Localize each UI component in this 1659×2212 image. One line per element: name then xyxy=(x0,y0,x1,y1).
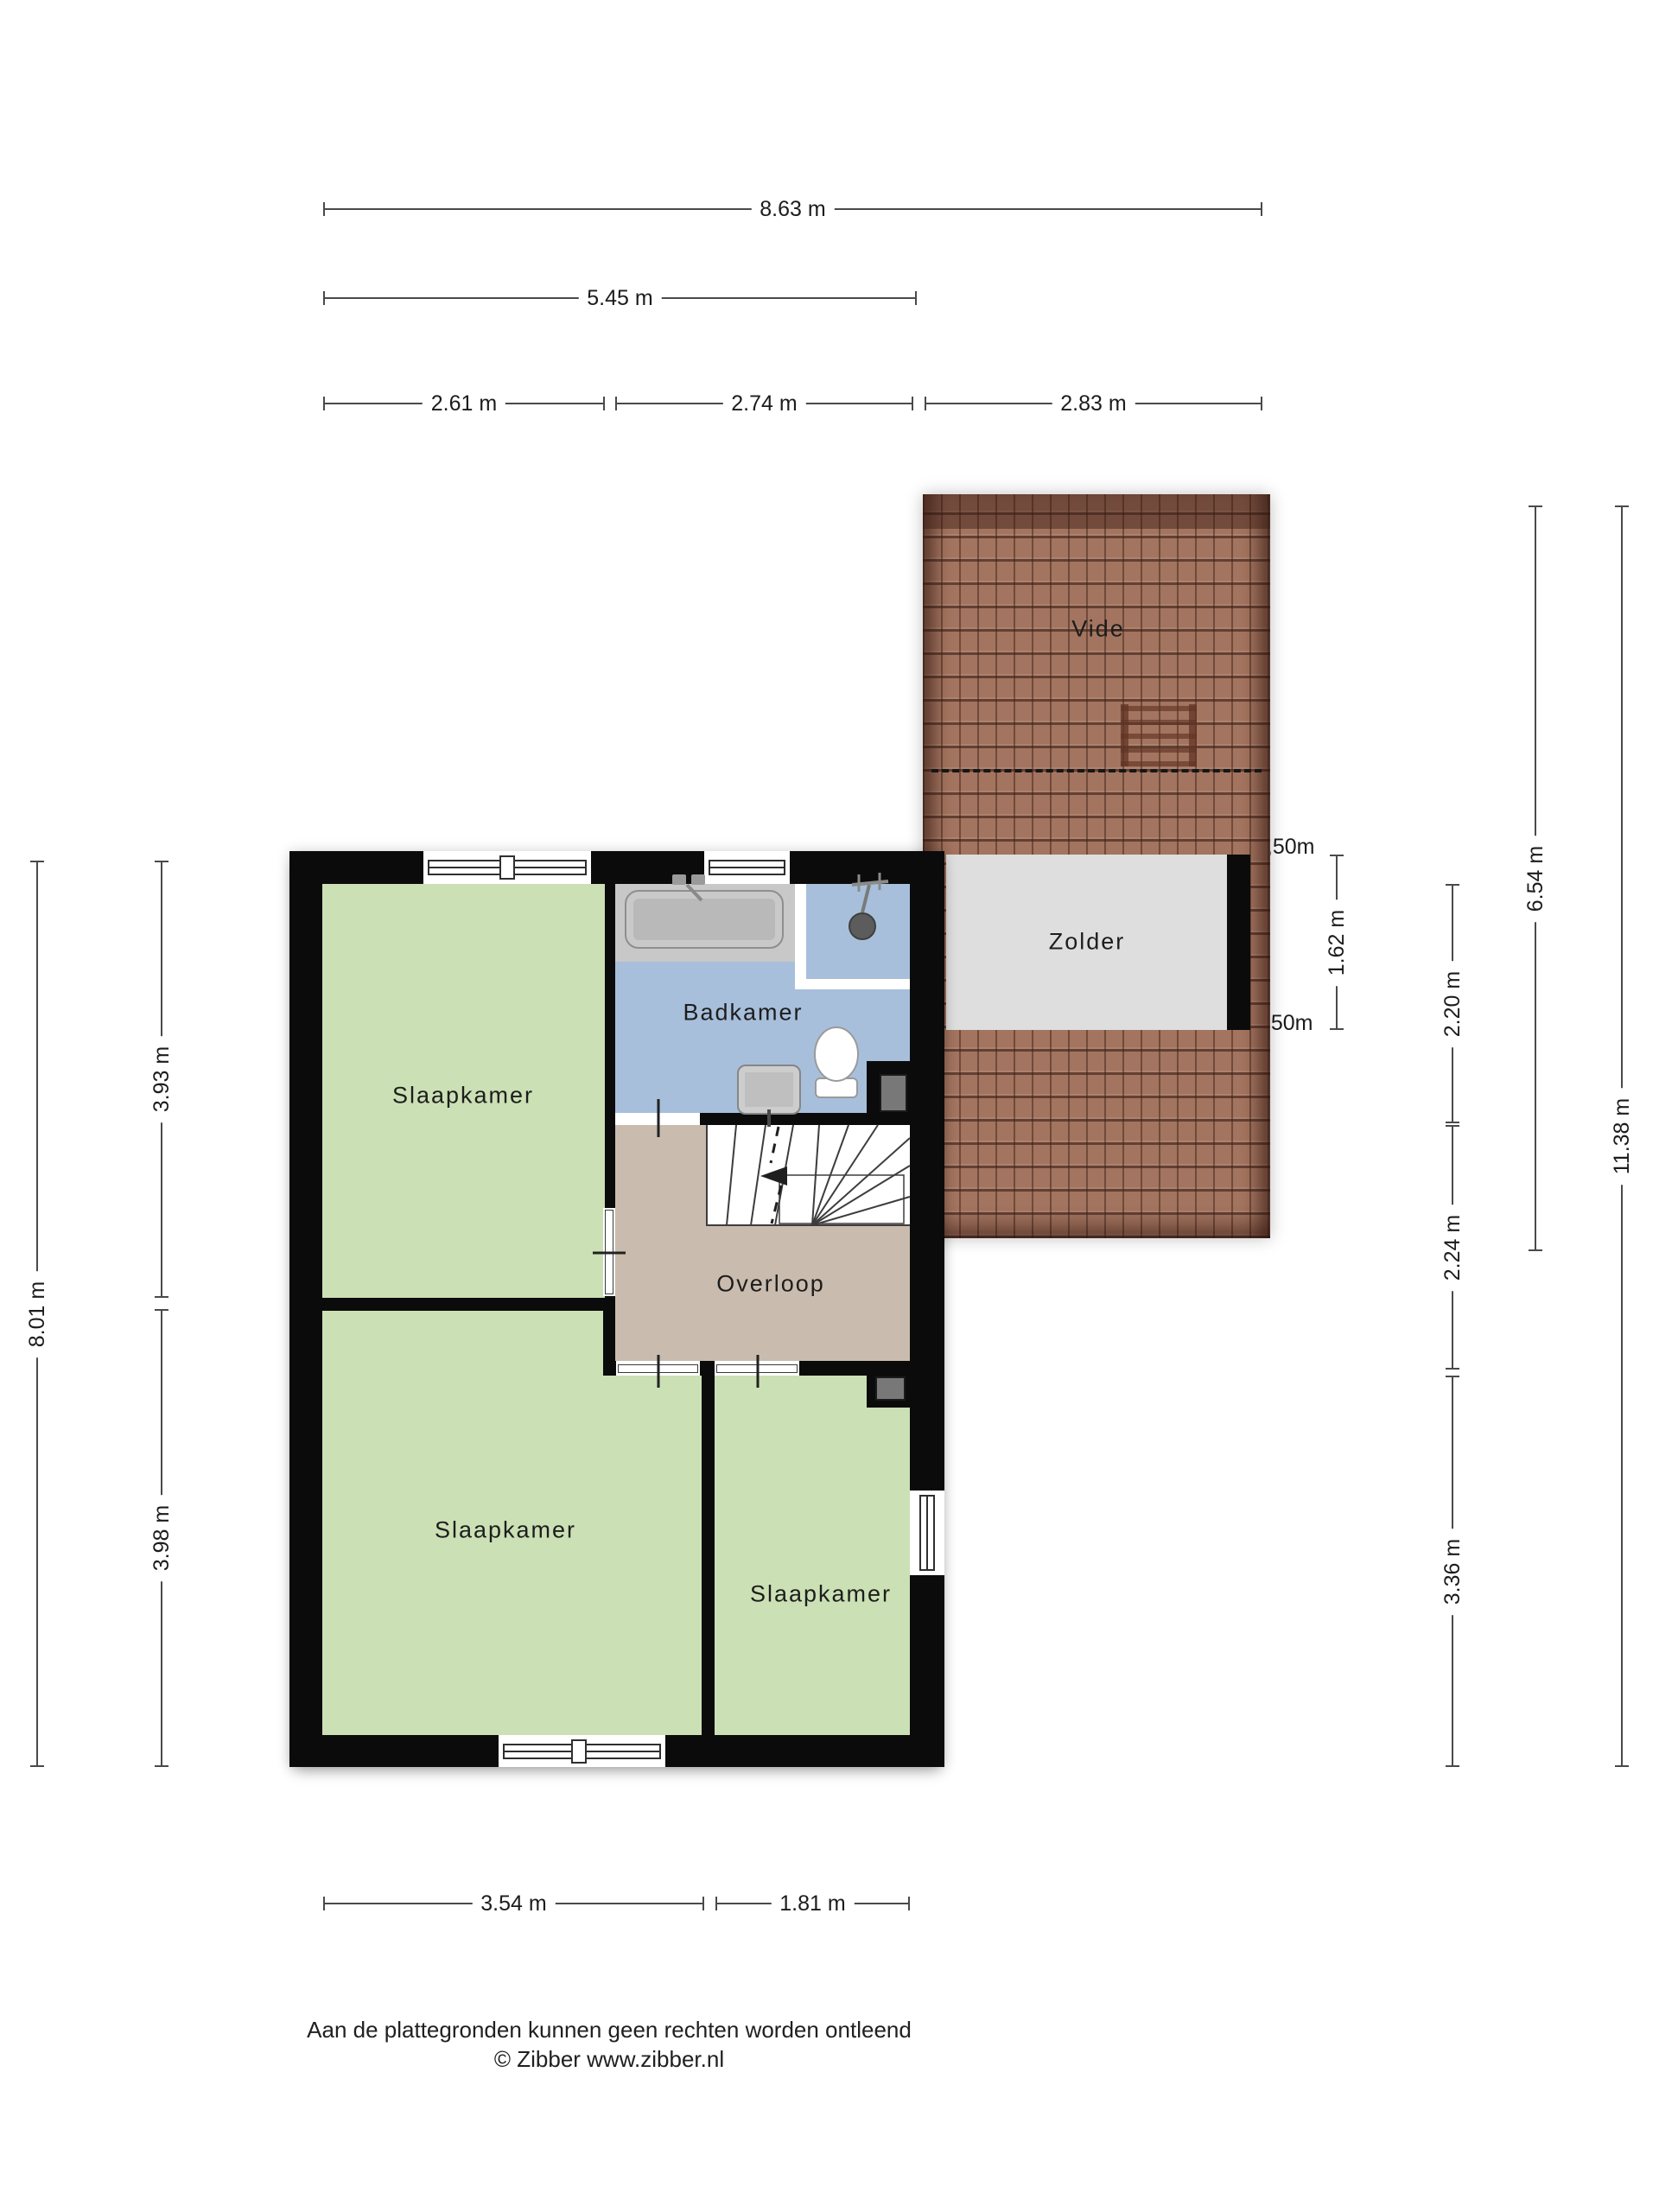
dim-bottom-right-room: 1.81 m xyxy=(715,1903,910,1904)
bedroom-bottom-left-upper-area xyxy=(322,1311,603,1380)
dim-label: 2.83 m xyxy=(1052,391,1135,416)
bedroom-bottom-left-door-opening xyxy=(616,1361,700,1376)
dim-label: 3.54 m xyxy=(472,1891,555,1916)
duct-inner xyxy=(880,1074,907,1112)
dim-label: 5.45 m xyxy=(578,285,661,311)
window-top-bathroom xyxy=(704,851,790,884)
dim-top-seg-3: 2.83 m xyxy=(925,403,1262,404)
dim-overloop-depth: 2.24 m xyxy=(1452,1125,1453,1370)
dim-label: 11.38 m xyxy=(1609,1088,1635,1185)
bedroom-bottom-right-door-opening xyxy=(715,1361,799,1376)
bedroom-bottom-right-area xyxy=(715,1376,910,1735)
duct-bathroom-corner xyxy=(867,1061,910,1125)
dim-bedroom-depth: 3.36 m xyxy=(1452,1376,1453,1767)
room-label-vide: Vide xyxy=(1071,616,1125,643)
dim-left-overall: 8.01 m xyxy=(36,861,38,1767)
dim-bottom-left-room: 3.54 m xyxy=(323,1903,704,1904)
door-frame xyxy=(716,1364,798,1373)
window-top-bedroom xyxy=(423,851,591,884)
zolder-right-wall xyxy=(1227,855,1250,1030)
dim-label: 2.24 m xyxy=(1440,1204,1465,1290)
dim-top-overall: 8.63 m xyxy=(323,208,1262,210)
roof-vide-zolder-block xyxy=(923,494,1270,1238)
main-floor-block xyxy=(289,851,944,1767)
dim-top-seg-2: 2.74 m xyxy=(615,403,913,404)
dim-label: 2.74 m xyxy=(722,391,805,416)
window-right-bedroom xyxy=(910,1491,944,1575)
window-mullion xyxy=(571,1739,587,1764)
window-frame xyxy=(919,1495,935,1571)
dim-total-length: 11.38 m xyxy=(1621,505,1623,1767)
window-bottom-bedroom xyxy=(499,1735,665,1767)
height-contour-dashed-line xyxy=(931,769,1262,772)
loft-ladder-icon xyxy=(1121,704,1197,766)
dim-label: 8.01 m xyxy=(24,1270,50,1357)
bathroom-door-opening xyxy=(615,1113,700,1125)
dim-label: 1.81 m xyxy=(771,1891,854,1916)
bedroom-bottom-left-area xyxy=(322,1376,702,1735)
dim-zolder-width: 1.62 m xyxy=(1336,855,1338,1030)
room-label-slaapkamer-top: Slaapkamer xyxy=(392,1083,534,1109)
dim-badkamer-depth: 2.20 m xyxy=(1452,884,1453,1123)
dim-top-left-section: 5.45 m xyxy=(323,297,917,299)
dim-label: 6.54 m xyxy=(1522,835,1548,921)
dim-label: 8.63 m xyxy=(751,196,834,222)
window-frame xyxy=(709,860,785,875)
dim-label: 2.20 m xyxy=(1440,960,1465,1046)
duct-bedroom-corner xyxy=(867,1370,910,1408)
duct-inner xyxy=(875,1376,906,1401)
washbasin-icon xyxy=(737,1065,801,1115)
dim-left-lower: 3.98 m xyxy=(161,1309,162,1767)
dim-label: 3.36 m xyxy=(1440,1528,1465,1614)
room-label-zolder: Zolder xyxy=(1049,929,1126,956)
shower-partition-vertical xyxy=(795,884,806,989)
room-label-badkamer: Badkamer xyxy=(683,1000,803,1027)
bathtub-icon xyxy=(625,890,784,949)
footer-copyright: © Zibber www.zibber.nl xyxy=(281,2044,938,2074)
room-label-slaapkamer-bottom-right: Slaapkamer xyxy=(750,1581,892,1608)
dim-roof-length: 6.54 m xyxy=(1535,505,1536,1251)
dim-label: 1.62 m xyxy=(1324,899,1350,985)
window-mullion xyxy=(499,855,515,880)
dim-left-upper: 3.93 m xyxy=(161,861,162,1298)
room-label-slaapkamer-bottom-left: Slaapkamer xyxy=(435,1517,576,1544)
dim-label: 3.93 m xyxy=(149,1036,175,1122)
door-frame xyxy=(618,1364,698,1373)
dim-label: 3.98 m xyxy=(149,1495,175,1581)
footer-disclaimer: Aan de plattegronden kunnen geen rechten… xyxy=(281,2015,938,2044)
bedroom-top-left-door-opening xyxy=(603,1208,615,1296)
footer: Aan de plattegronden kunnen geen rechten… xyxy=(281,2015,938,2074)
room-label-overloop: Overloop xyxy=(716,1271,825,1298)
floor-plan-page: 8.63 m 5.45 m 2.61 m 2.74 m 2.83 m 8.01 … xyxy=(0,0,1659,2212)
stairwell-area xyxy=(707,1125,910,1225)
shower-partition-horizontal xyxy=(806,979,910,989)
dim-top-seg-1: 2.61 m xyxy=(323,403,605,404)
dim-label: 2.61 m xyxy=(423,391,505,416)
door-frame xyxy=(605,1210,613,1294)
